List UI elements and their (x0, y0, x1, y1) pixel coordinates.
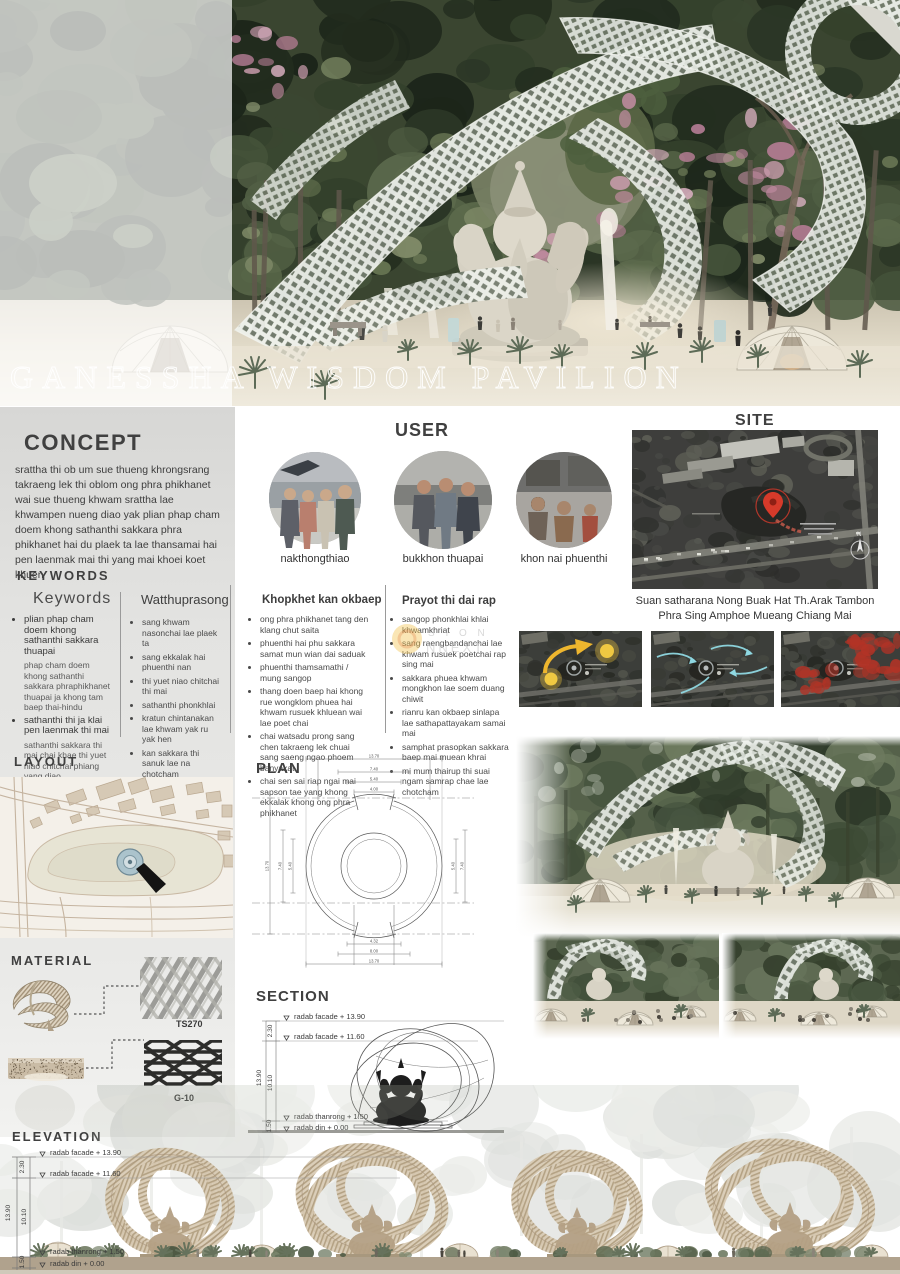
svg-text:7.40: 7.40 (460, 861, 465, 870)
svg-text:13.90: 13.90 (5, 1204, 12, 1221)
svg-text:1.50: 1.50 (19, 1255, 26, 1268)
svg-text:13.70: 13.70 (369, 754, 380, 759)
svg-text:N: N (857, 532, 861, 538)
svg-text:2.30: 2.30 (267, 1024, 274, 1037)
svg-text:NNEXT: NNEXT (426, 640, 485, 655)
svg-text:radab din + 0.00: radab din + 0.00 (50, 1259, 104, 1268)
svg-text:2.30: 2.30 (19, 1160, 26, 1173)
svg-text:radab thanrong + 1.50: radab thanrong + 1.50 (50, 1247, 124, 1256)
svg-text:radab facade + 13.90: radab facade + 13.90 (294, 1012, 365, 1021)
svg-text:4.32: 4.32 (370, 939, 379, 944)
svg-text:radab facade + 11.60: radab facade + 11.60 (294, 1032, 365, 1041)
svg-text:S I O N: S I O N (428, 628, 489, 639)
svg-text:13.70: 13.70 (265, 860, 270, 871)
svg-text:5.40: 5.40 (288, 861, 293, 870)
svg-text:4.00: 4.00 (370, 787, 379, 792)
svg-text:5.40: 5.40 (370, 777, 379, 782)
svg-text:13.70: 13.70 (369, 959, 380, 964)
svg-text:8.00: 8.00 (370, 949, 379, 954)
svg-text:7.40: 7.40 (370, 767, 379, 772)
svg-text:13.90: 13.90 (256, 1069, 263, 1086)
svg-text:10.10: 10.10 (21, 1208, 28, 1225)
svg-text:5.40: 5.40 (451, 861, 456, 870)
svg-text:7.40: 7.40 (278, 861, 283, 870)
svg-text:radab facade + 13.90: radab facade + 13.90 (50, 1148, 121, 1157)
svg-text:radab facade + 11.60: radab facade + 11.60 (50, 1169, 121, 1178)
